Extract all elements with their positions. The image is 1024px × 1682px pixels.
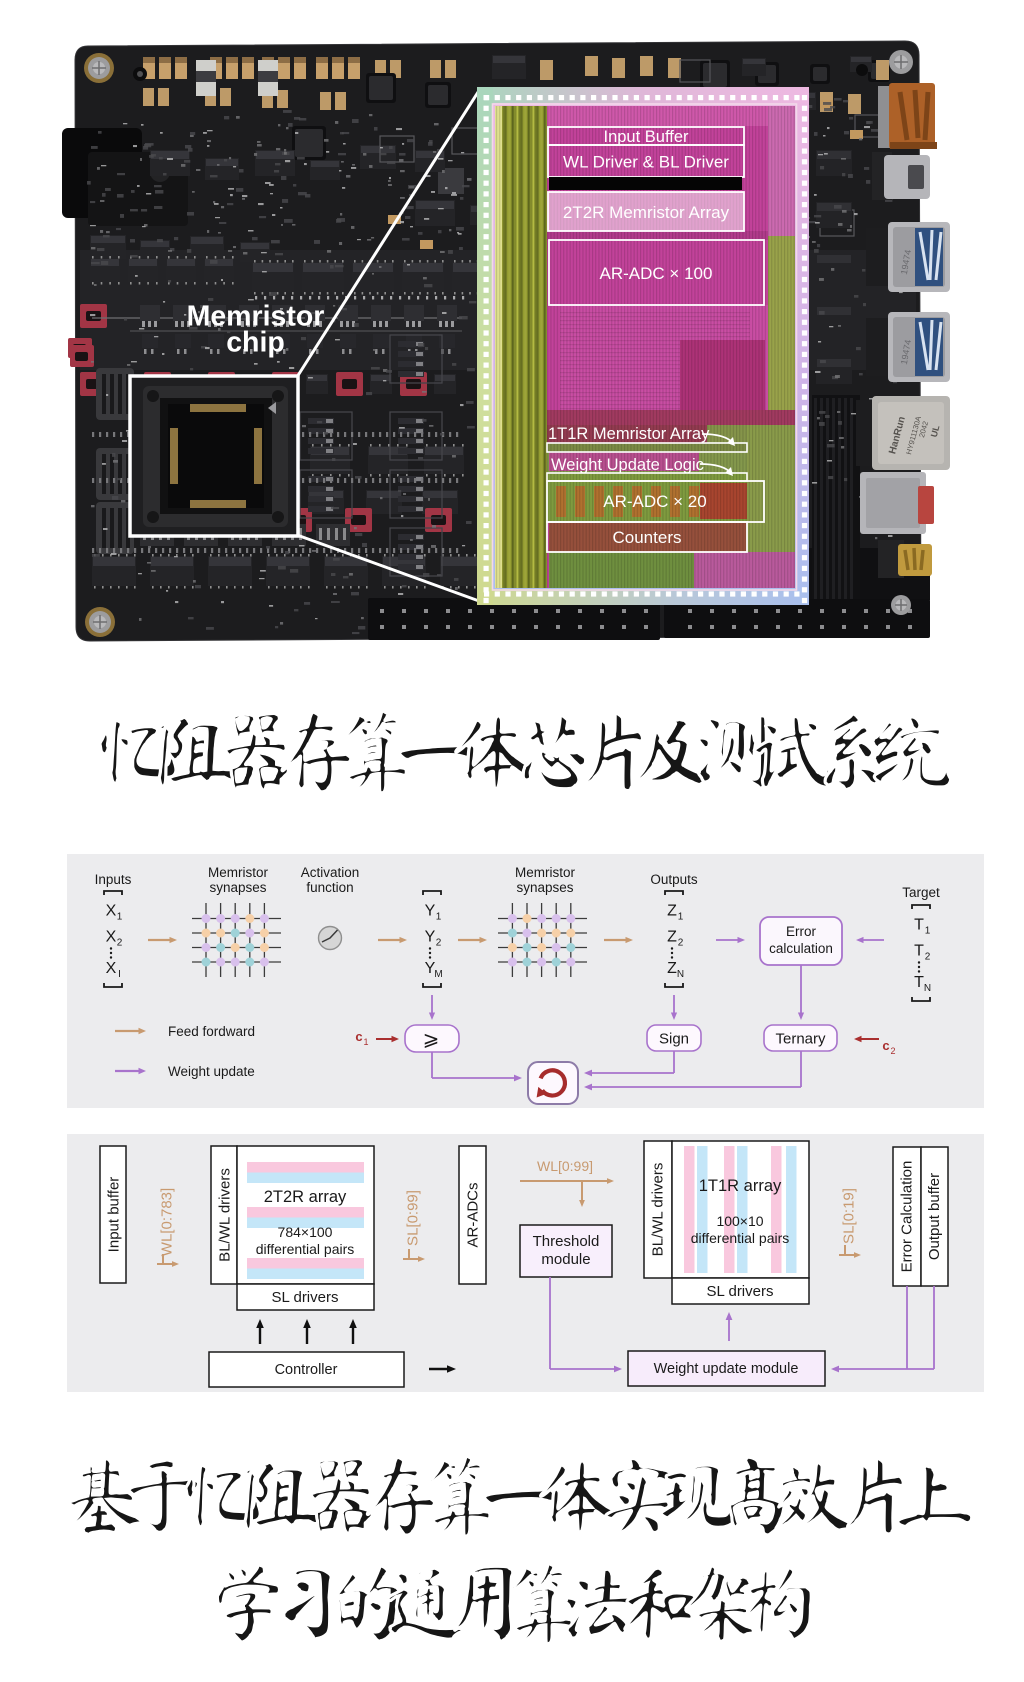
svg-text:Activation: Activation bbox=[301, 865, 360, 880]
svg-text:2T2R array: 2T2R array bbox=[264, 1188, 347, 1206]
svg-text:2T2R Memristor Array: 2T2R Memristor Array bbox=[563, 203, 730, 222]
svg-text:Z: Z bbox=[667, 960, 677, 977]
svg-text:Z: Z bbox=[667, 903, 677, 920]
svg-text:Controller: Controller bbox=[275, 1362, 338, 1378]
svg-text:100×10: 100×10 bbox=[716, 1213, 763, 1229]
svg-text:Feed fordward: Feed fordward bbox=[168, 1024, 255, 1039]
svg-text:Weight Update Logic: Weight Update Logic bbox=[551, 456, 704, 474]
svg-text:differential pairs: differential pairs bbox=[256, 1241, 355, 1257]
svg-text:Counters: Counters bbox=[613, 528, 682, 547]
svg-text:N: N bbox=[924, 983, 931, 994]
svg-text:c: c bbox=[882, 1038, 889, 1053]
svg-text:Ternary: Ternary bbox=[775, 1031, 826, 1048]
svg-text:2: 2 bbox=[678, 938, 684, 949]
svg-text:1: 1 bbox=[436, 912, 442, 923]
svg-text:784×100: 784×100 bbox=[278, 1224, 333, 1240]
svg-text:function: function bbox=[306, 880, 353, 895]
svg-text:synapses: synapses bbox=[516, 880, 573, 895]
svg-text:AR-ADC × 100: AR-ADC × 100 bbox=[600, 264, 713, 283]
svg-text:1: 1 bbox=[363, 1037, 368, 1047]
svg-text:Y: Y bbox=[425, 903, 436, 920]
svg-text:Threshold: Threshold bbox=[533, 1233, 600, 1250]
svg-text:X: X bbox=[106, 903, 117, 920]
svg-text:X: X bbox=[106, 929, 117, 946]
svg-text:2: 2 bbox=[436, 938, 442, 949]
svg-text:⩾: ⩾ bbox=[423, 1029, 440, 1051]
svg-text:Input Buffer: Input Buffer bbox=[603, 128, 689, 146]
svg-text:Z: Z bbox=[667, 929, 677, 946]
svg-text:2: 2 bbox=[925, 952, 931, 963]
svg-text:2: 2 bbox=[890, 1046, 895, 1056]
svg-text:Target: Target bbox=[902, 885, 940, 900]
svg-text:2: 2 bbox=[117, 938, 123, 949]
svg-text:Memristor: Memristor bbox=[208, 865, 269, 880]
svg-text:AR-ADC × 20: AR-ADC × 20 bbox=[603, 492, 706, 511]
svg-text:T: T bbox=[914, 943, 924, 960]
svg-text:AR-ADCs: AR-ADCs bbox=[465, 1182, 482, 1247]
svg-text:T: T bbox=[914, 974, 924, 991]
svg-text:SL drivers: SL drivers bbox=[272, 1289, 339, 1306]
svg-text:I: I bbox=[118, 969, 121, 980]
svg-text:Memristor: Memristor bbox=[515, 865, 576, 880]
svg-text:Inputs: Inputs bbox=[95, 872, 132, 887]
svg-text:WL Driver & BL Driver: WL Driver & BL Driver bbox=[563, 153, 729, 172]
svg-text:Weight update module: Weight update module bbox=[654, 1361, 799, 1377]
svg-text:synapses: synapses bbox=[209, 880, 266, 895]
svg-text:X: X bbox=[106, 960, 117, 977]
svg-text:WL[0:783]: WL[0:783] bbox=[159, 1188, 176, 1256]
svg-text:Error: Error bbox=[786, 924, 817, 939]
svg-text:Output buffer: Output buffer bbox=[926, 1173, 943, 1260]
svg-text:1: 1 bbox=[925, 926, 931, 937]
svg-text:SL[0:19]: SL[0:19] bbox=[841, 1188, 858, 1244]
svg-text:BL/WL drivers: BL/WL drivers bbox=[650, 1163, 667, 1257]
svg-text:Weight update: Weight update bbox=[168, 1064, 255, 1079]
svg-text:calculation: calculation bbox=[769, 941, 833, 956]
svg-text:1T1R array: 1T1R array bbox=[699, 1177, 782, 1195]
svg-text:1: 1 bbox=[678, 912, 684, 923]
svg-text:module: module bbox=[541, 1251, 590, 1268]
svg-text:M: M bbox=[434, 969, 442, 980]
svg-text:WL[0:99]: WL[0:99] bbox=[537, 1158, 593, 1174]
svg-text:Outputs: Outputs bbox=[650, 872, 698, 887]
svg-text:SL[0:99]: SL[0:99] bbox=[405, 1190, 422, 1246]
svg-text:chip: chip bbox=[226, 327, 285, 359]
svg-text:Error Calculation: Error Calculation bbox=[899, 1161, 916, 1273]
svg-text:Y: Y bbox=[425, 929, 436, 946]
svg-text:N: N bbox=[677, 969, 684, 980]
svg-text:T: T bbox=[914, 917, 924, 934]
svg-text:1T1R Memristor Array: 1T1R Memristor Array bbox=[548, 425, 710, 443]
svg-text:c: c bbox=[355, 1029, 362, 1044]
svg-text:BL/WL drivers: BL/WL drivers bbox=[217, 1168, 234, 1262]
svg-text:SL drivers: SL drivers bbox=[707, 1283, 774, 1300]
svg-text:differential pairs: differential pairs bbox=[691, 1230, 790, 1246]
svg-text:1: 1 bbox=[117, 912, 123, 923]
svg-text:Input buffer: Input buffer bbox=[106, 1177, 123, 1253]
svg-text:Sign: Sign bbox=[659, 1031, 689, 1048]
